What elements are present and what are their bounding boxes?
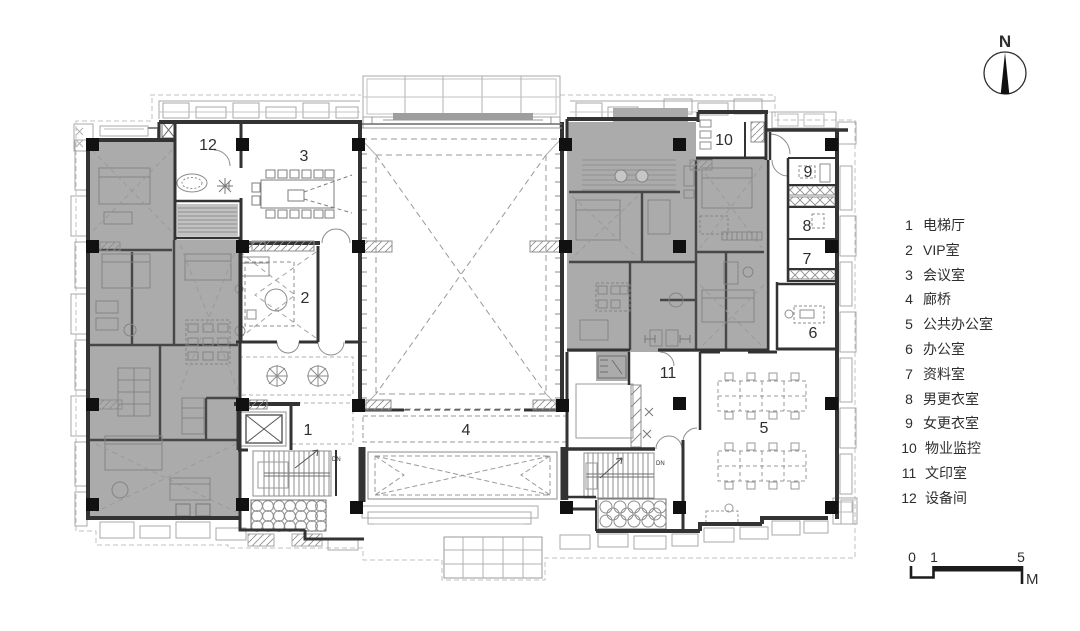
svg-text:VIP室: VIP室 [923,242,960,258]
svg-text:资料室: 资料室 [923,366,965,382]
svg-text:3: 3 [905,267,913,283]
svg-text:11: 11 [902,465,917,481]
svg-text:10: 10 [901,440,917,456]
svg-text:0: 0 [908,549,916,565]
svg-text:1: 1 [304,422,313,439]
svg-text:5: 5 [1017,549,1025,565]
svg-text:8: 8 [905,391,913,407]
svg-text:10: 10 [715,132,733,149]
svg-text:5: 5 [905,316,913,332]
svg-text:3: 3 [300,148,309,165]
svg-text:2: 2 [905,242,913,258]
svg-text:设备间: 设备间 [925,490,967,506]
svg-text:公共办公室: 公共办公室 [923,316,993,332]
svg-text:女更衣室: 女更衣室 [923,415,979,431]
svg-text:电梯厅: 电梯厅 [923,217,965,233]
svg-text:11: 11 [660,365,677,382]
svg-text:12: 12 [199,137,217,154]
svg-text:会议室: 会议室 [923,267,965,283]
svg-text:1: 1 [905,217,913,233]
svg-text:7: 7 [803,251,812,268]
svg-text:8: 8 [803,218,812,235]
svg-text:4: 4 [462,422,471,439]
svg-text:DN: DN [656,461,665,467]
svg-text:6: 6 [905,341,913,357]
svg-text:6: 6 [809,325,818,342]
svg-text:物业监控: 物业监控 [925,440,981,456]
svg-text:男更衣室: 男更衣室 [923,391,979,407]
svg-text:2: 2 [301,290,310,307]
svg-text:文印室: 文印室 [925,465,967,481]
svg-text:12: 12 [901,490,917,506]
svg-text:廊桥: 廊桥 [923,291,951,307]
svg-text:办公室: 办公室 [923,341,965,357]
svg-text:9: 9 [804,164,813,181]
svg-text:1: 1 [930,549,938,565]
svg-text:4: 4 [905,291,913,307]
svg-text:7: 7 [905,366,913,382]
svg-text:5: 5 [760,420,769,437]
svg-text:M: M [1026,571,1039,588]
svg-text:9: 9 [905,415,913,431]
svg-text:N: N [999,32,1011,51]
